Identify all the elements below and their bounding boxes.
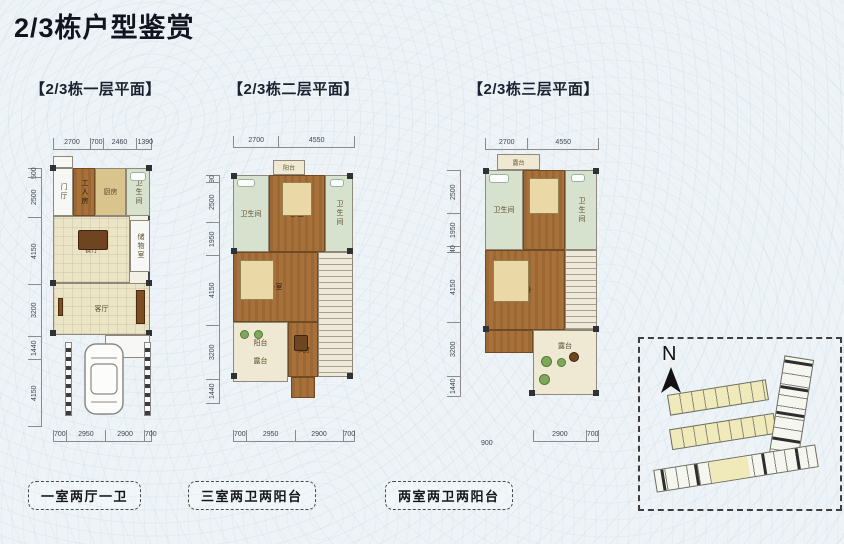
dim-label: 700 (144, 430, 157, 441)
dim-label: 900 (481, 440, 493, 447)
plan1-dims-left: 500 2500 4150 3200 1440 4150 (28, 168, 42, 427)
plan3-dims-top: 2700 4550 (485, 138, 599, 150)
dim-label: 2460 (103, 138, 136, 149)
staircase (565, 250, 597, 330)
floorplan-level2: 2700 4550 90 2500 1950 4150 3200 1440 阳台… (198, 130, 403, 490)
room-balcony-top: 阳台 (273, 160, 305, 175)
building-row-2 (669, 413, 777, 450)
dim-label: 2900 (105, 430, 144, 441)
dim-label: 700 (54, 430, 66, 441)
dim-label: 2500 (206, 182, 219, 222)
bed (240, 260, 274, 300)
plan3-dims-left: 2500 1950 40 4150 3200 1440 (447, 170, 461, 397)
page-title: 2/3栋户型鉴赏 (14, 6, 195, 45)
dim-label: 500 (28, 169, 41, 177)
parking-marker-right (144, 342, 151, 416)
page: 2/3栋户型鉴赏 【2/3栋一层平面】 【2/3栋二层平面】 【2/3栋三层平面… (0, 0, 844, 544)
dim-label: 4150 (447, 252, 460, 322)
study-bay (291, 377, 315, 398)
plant (539, 374, 550, 385)
plan1-dims-bottom: 700 2950 2900 700 (53, 430, 152, 442)
dim-label: 2700 (234, 136, 278, 147)
room-maid: 工人房 (73, 168, 95, 216)
dim-label: 2500 (28, 177, 41, 217)
desk (294, 335, 308, 351)
wall-block (146, 165, 152, 171)
plan2-dims-top: 2700 4550 (233, 136, 355, 148)
dim-label: 4550 (527, 138, 598, 149)
plant (254, 330, 263, 339)
dim-label: 700 (586, 430, 599, 441)
building-row-4 (653, 444, 819, 492)
floorplan-level3: 2700 4550 2500 1950 40 4150 3200 1440 露台… (435, 130, 640, 490)
car-icon (82, 340, 126, 418)
dim-label: 4150 (206, 255, 219, 325)
plant (557, 358, 566, 367)
plan2-dims-bottom: 700 2950 2900 700 (233, 430, 355, 442)
north-arrow-icon (658, 365, 684, 395)
dim-label: 1950 (447, 213, 460, 246)
room-bath-right: 卫生间 (565, 170, 597, 250)
wall-block (50, 280, 56, 286)
plant (240, 330, 249, 339)
wall-block (593, 326, 599, 332)
staircase (318, 252, 353, 377)
wall-block (231, 173, 237, 179)
dim-label: 2700 (486, 138, 527, 149)
room-storage: 储物室 (130, 220, 150, 272)
bathtub (571, 174, 585, 182)
dim-label: 4150 (28, 217, 41, 284)
dim-label: 700 (343, 430, 356, 441)
dim-label: 700 (90, 138, 103, 149)
dim-label: 4150 (28, 359, 41, 426)
room-kitchen: 厨房 (95, 168, 126, 216)
sofa (136, 290, 145, 324)
room-terrace-top: 露台 (497, 154, 540, 170)
terrace-label: 露台 (254, 356, 268, 366)
wall-block (529, 390, 535, 396)
highlighted-units (709, 456, 751, 483)
wall-block (231, 248, 237, 254)
dim-label: 2900 (295, 430, 343, 441)
patio-table (569, 352, 579, 362)
plan1-dims-top: 2700 700 2460 1390 (53, 138, 152, 150)
bathtub (130, 172, 146, 181)
porch-roof (53, 156, 73, 168)
dim-label: 1440 (28, 336, 41, 359)
bathtub (489, 174, 509, 183)
plan2-type-label: 三室两卫两阳台 (188, 481, 316, 510)
dining-table (78, 230, 108, 250)
dim-label: 3200 (28, 284, 41, 336)
plan3-type-label: 两室两卫两阳台 (385, 481, 513, 510)
master-bay (485, 330, 533, 353)
wall-block (347, 173, 353, 179)
wall-block (593, 168, 599, 174)
dim-label: 2950 (246, 430, 295, 441)
room-entry: 门厅 (53, 168, 73, 216)
bathtub (237, 179, 255, 187)
bathtub (330, 179, 344, 187)
bed (493, 260, 529, 302)
dim-label: 2700 (54, 138, 90, 149)
wall-block (146, 280, 152, 286)
floorplan-level1: 2700 700 2460 1390 500 2500 4150 3200 14… (20, 130, 225, 490)
bed (282, 182, 312, 216)
wall-block (347, 248, 353, 254)
wall-block (50, 165, 56, 171)
plan1-type-label: 一室两厅一卫 (28, 481, 141, 510)
wall-block (593, 390, 599, 396)
dim-label: 3200 (206, 325, 219, 379)
plan1-header: 【2/3栋一层平面】 (30, 78, 161, 99)
plant (541, 356, 552, 367)
dim-label: 2500 (447, 171, 460, 213)
north-label: N (662, 343, 676, 366)
balcony-label: 阳台 (254, 338, 268, 348)
dim-label: 4550 (278, 136, 354, 147)
bed (529, 178, 559, 214)
wall-block (50, 330, 56, 336)
tv-cabinet (58, 298, 63, 316)
plan2-header: 【2/3栋二层平面】 (228, 78, 359, 99)
dim-label: 2950 (66, 430, 105, 441)
dim-label: 1950 (206, 222, 219, 255)
plan2-dims-left: 90 2500 1950 4150 3200 1440 (206, 175, 220, 404)
wall-block (347, 373, 353, 379)
site-plan: N (638, 337, 842, 511)
plan3-dims-bottom: 2900 700 (533, 430, 599, 442)
dim-label: 700 (234, 430, 246, 441)
wall-block (483, 326, 489, 332)
parking-marker-left (65, 342, 72, 416)
dim-label: 1440 (447, 376, 460, 396)
dim-label: 1390 (136, 138, 154, 149)
wall-block (231, 373, 237, 379)
dim-label: 1440 (206, 379, 219, 403)
dim-label: 3200 (447, 322, 460, 376)
plan3-header: 【2/3栋三层平面】 (468, 78, 599, 99)
dim-label: 2900 (534, 430, 586, 441)
wall-block (483, 168, 489, 174)
